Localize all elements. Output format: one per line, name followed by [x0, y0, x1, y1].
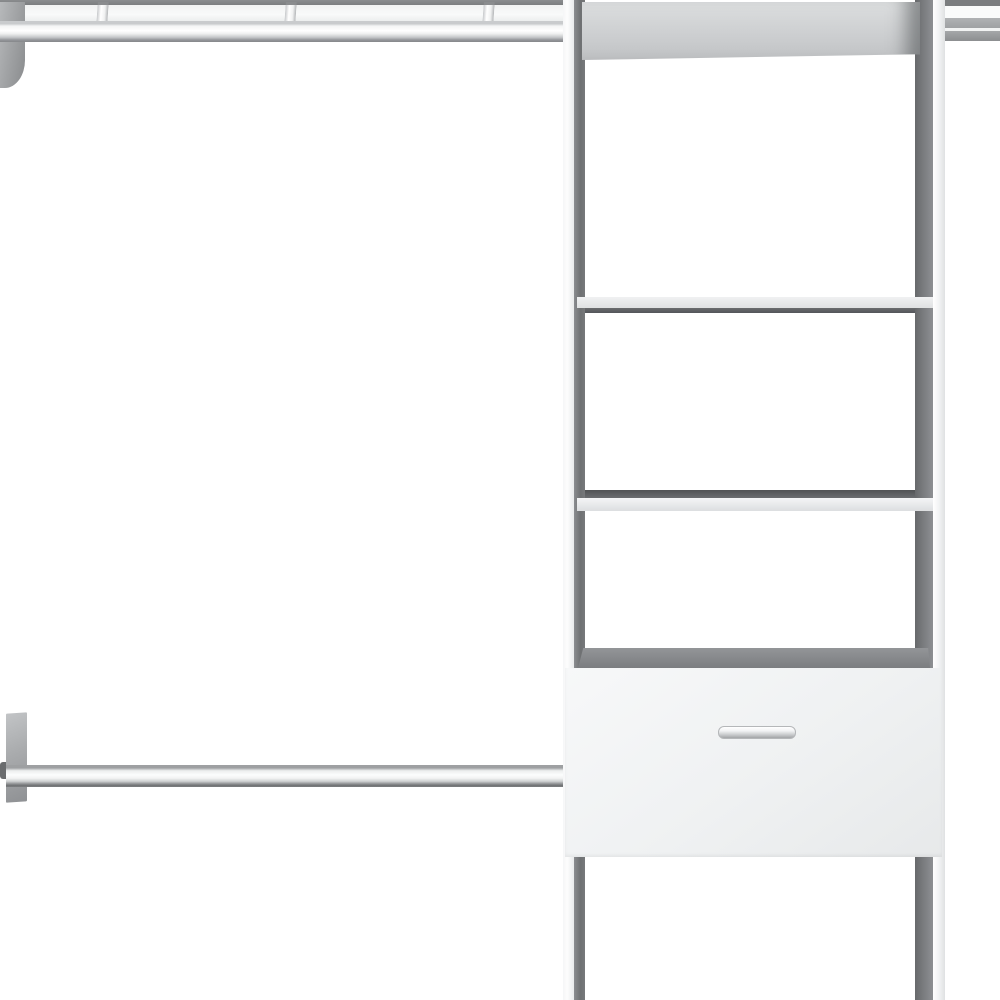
drawer-top-shelf [578, 648, 930, 668]
drawer-handle [718, 726, 796, 739]
top-shelf-underside [0, 5, 563, 22]
shelf-1-shadow-line [585, 308, 915, 313]
top-rail-right-white-band [945, 6, 1000, 18]
shelf-2-front-edge [577, 498, 933, 511]
shelf-1-front-edge [577, 297, 933, 308]
top-rail-right-rod-edge [945, 31, 1000, 41]
top-rail-right-gray-band [945, 18, 1000, 28]
closet-organizer-photo [0, 0, 1000, 1000]
shelf-2-shadow-line [585, 490, 915, 498]
hanging-rod [6, 765, 565, 787]
tower-top-panel [582, 2, 920, 60]
top-left-wall-bracket [0, 2, 25, 88]
top-hanger-rod [0, 21, 565, 42]
rod-wall-plate [6, 712, 27, 802]
drawer-front [565, 668, 942, 857]
